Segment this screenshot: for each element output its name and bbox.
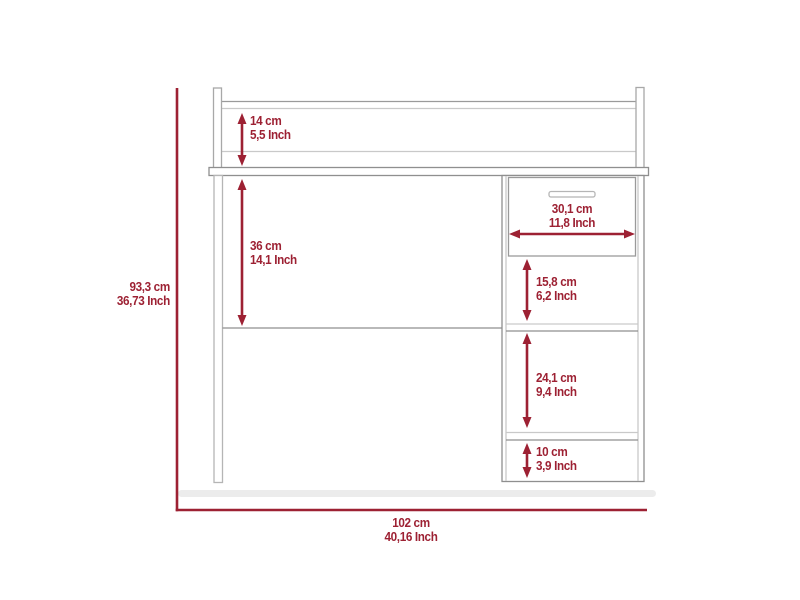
dim-label-bottom-cubby: 10 cm 3,9 Inch: [536, 445, 577, 473]
drawer-handle: [549, 192, 595, 198]
dim-label-drawer-width: 30,1 cm 11,8 Inch: [500, 202, 644, 230]
dim-label-upper-cubby: 15,8 cm 6,2 Inch: [536, 275, 577, 303]
dim-cm: 30,1 cm: [500, 202, 644, 216]
dim-cm: 93,3 cm: [117, 280, 170, 294]
dim-cm: 10 cm: [536, 445, 577, 459]
dim-inch: 36,73 Inch: [117, 294, 170, 308]
dim-cm: 102 cm: [339, 516, 483, 530]
dim-label-hutch-height: 14 cm 5,5 Inch: [250, 114, 291, 142]
arrow-desk-clearance: [238, 179, 247, 326]
dim-label-overall-width: 102 cm 40,16 Inch: [339, 516, 483, 544]
desk-leg-left: [214, 176, 223, 483]
arrow-hutch-height: [238, 113, 247, 166]
dimension-diagram: 14 cm 5,5 Inch 36 cm 14,1 Inch 93,3 cm 3…: [0, 0, 800, 600]
dim-inch: 40,16 Inch: [339, 530, 483, 544]
dim-inch: 14,1 Inch: [250, 253, 297, 267]
dim-label-overall-height: 93,3 cm 36,73 Inch: [117, 280, 170, 308]
hutch-post-left: [214, 88, 222, 168]
dim-inch: 5,5 Inch: [250, 128, 291, 142]
floor-shadow: [178, 490, 656, 497]
dim-cm: 24,1 cm: [536, 371, 577, 385]
desk-top: [209, 168, 649, 176]
dim-label-middle-cubby: 24,1 cm 9,4 Inch: [536, 371, 577, 399]
hutch-post-right: [636, 88, 644, 169]
dim-inch: 11,8 Inch: [500, 216, 644, 230]
dim-label-desk-clearance: 36 cm 14,1 Inch: [250, 239, 297, 267]
dim-cm: 14 cm: [250, 114, 291, 128]
dim-cm: 36 cm: [250, 239, 297, 253]
dim-cm: 15,8 cm: [536, 275, 577, 289]
dim-inch: 3,9 Inch: [536, 459, 577, 473]
dim-inch: 6,2 Inch: [536, 289, 577, 303]
dim-inch: 9,4 Inch: [536, 385, 577, 399]
